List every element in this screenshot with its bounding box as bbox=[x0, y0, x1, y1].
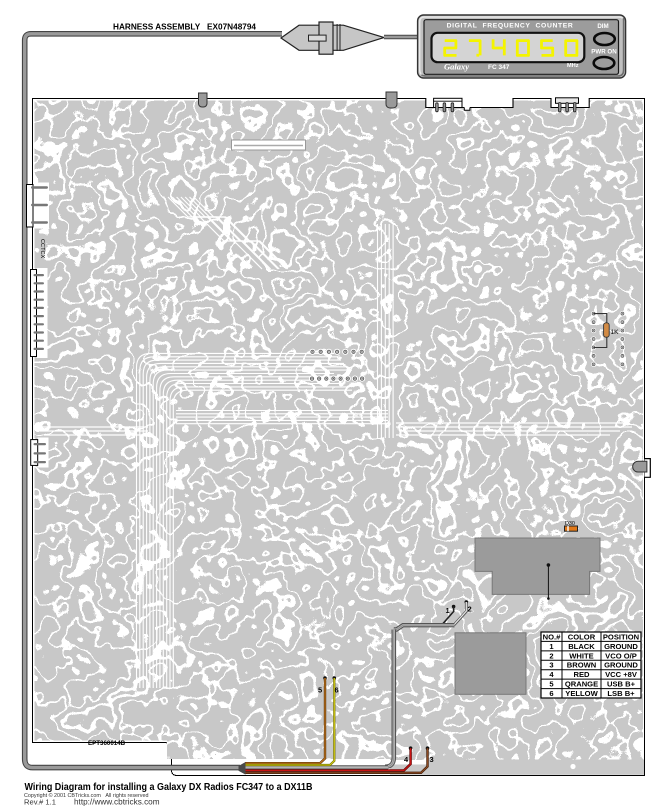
svg-text:VCO O/P: VCO O/P bbox=[605, 651, 637, 660]
svg-text:3: 3 bbox=[549, 661, 553, 670]
svg-text:http://www.cbtricks.com: http://www.cbtricks.com bbox=[74, 798, 160, 807]
svg-text:DIGITAL FREQUENCY COUNTER: DIGITAL FREQUENCY COUNTER bbox=[447, 23, 574, 30]
svg-text:Rev.# 1.1: Rev.# 1.1 bbox=[24, 798, 56, 807]
svg-text:YELLOW: YELLOW bbox=[565, 689, 598, 698]
svg-text:MHz: MHz bbox=[567, 63, 579, 69]
svg-text:GROUND: GROUND bbox=[604, 661, 638, 670]
svg-text:PWR ON: PWR ON bbox=[591, 49, 617, 56]
svg-text:COLOR: COLOR bbox=[568, 632, 596, 641]
svg-text:WHITE: WHITE bbox=[569, 651, 593, 660]
svg-text:BLACK: BLACK bbox=[568, 642, 595, 651]
svg-text:USB B+: USB B+ bbox=[607, 680, 636, 689]
svg-text:1: 1 bbox=[446, 606, 450, 615]
svg-text:NO.#: NO.# bbox=[543, 632, 562, 641]
svg-text:1K: 1K bbox=[611, 329, 620, 336]
svg-text:Galaxy: Galaxy bbox=[444, 62, 469, 72]
svg-text:POSITION: POSITION bbox=[603, 632, 639, 641]
svg-text:GROUND: GROUND bbox=[604, 642, 638, 651]
svg-text:Wiring Diagram for installing: Wiring Diagram for installing a Galaxy D… bbox=[25, 782, 313, 793]
svg-text:2: 2 bbox=[468, 605, 472, 614]
svg-text:CCTCX: CCTCX bbox=[39, 239, 45, 259]
svg-text:BROWN: BROWN bbox=[567, 661, 597, 670]
svg-text:3: 3 bbox=[430, 755, 434, 764]
svg-text:QRANGE: QRANGE bbox=[565, 680, 598, 689]
svg-text:RED: RED bbox=[573, 670, 590, 679]
svg-text:LSB B+: LSB B+ bbox=[607, 689, 635, 698]
svg-text:HARNESS ASSEMBLY EX07N48794: HARNESS ASSEMBLY EX07N48794 bbox=[113, 23, 256, 32]
svg-text:EPT360014B: EPT360014B bbox=[88, 740, 126, 747]
svg-text:6: 6 bbox=[549, 689, 553, 698]
svg-text:VCC +8V: VCC +8V bbox=[605, 670, 638, 679]
svg-text:6: 6 bbox=[335, 686, 339, 695]
svg-text:FC 347: FC 347 bbox=[488, 64, 510, 71]
svg-text:DIM: DIM bbox=[597, 23, 608, 30]
svg-text:5: 5 bbox=[318, 686, 322, 695]
svg-text:2: 2 bbox=[549, 651, 553, 660]
